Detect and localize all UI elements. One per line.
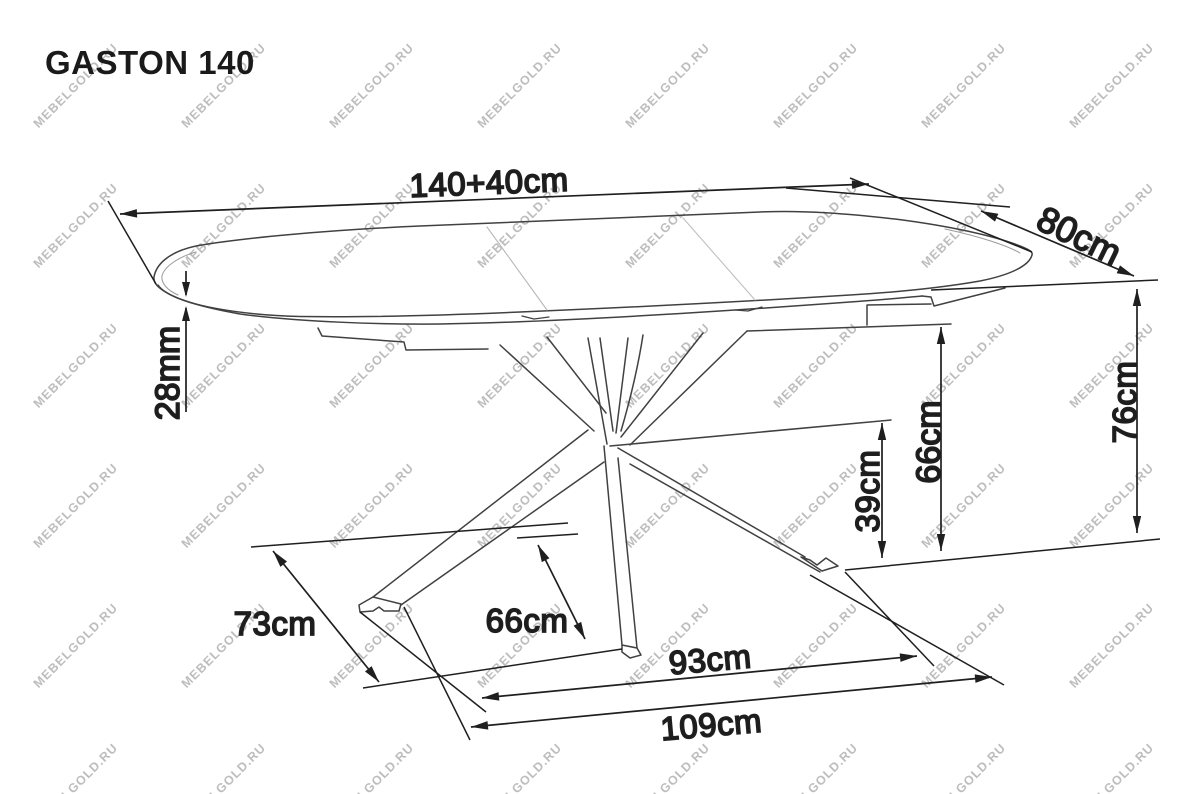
svg-text:76cm: 76cm bbox=[1106, 361, 1143, 444]
svg-text:MEBELGOLD.RU: MEBELGOLD.RU bbox=[623, 741, 713, 794]
svg-text:MEBELGOLD.RU: MEBELGOLD.RU bbox=[1067, 601, 1157, 691]
svg-text:MEBELGOLD.RU: MEBELGOLD.RU bbox=[31, 461, 121, 551]
svg-text:MEBELGOLD.RU: MEBELGOLD.RU bbox=[327, 321, 417, 411]
svg-text:MEBELGOLD.RU: MEBELGOLD.RU bbox=[623, 181, 713, 271]
svg-text:MEBELGOLD.RU: MEBELGOLD.RU bbox=[179, 321, 269, 411]
svg-text:28mm: 28mm bbox=[149, 326, 187, 420]
svg-text:MEBELGOLD.RU: MEBELGOLD.RU bbox=[327, 181, 417, 271]
svg-text:GASTON 140: GASTON 140 bbox=[45, 44, 255, 81]
svg-text:MEBELGOLD.RU: MEBELGOLD.RU bbox=[771, 741, 861, 794]
svg-text:MEBELGOLD.RU: MEBELGOLD.RU bbox=[919, 41, 1009, 131]
svg-text:MEBELGOLD.RU: MEBELGOLD.RU bbox=[1067, 41, 1157, 131]
svg-text:MEBELGOLD.RU: MEBELGOLD.RU bbox=[475, 41, 565, 131]
svg-text:MEBELGOLD.RU: MEBELGOLD.RU bbox=[179, 461, 269, 551]
svg-text:MEBELGOLD.RU: MEBELGOLD.RU bbox=[623, 321, 713, 411]
svg-text:MEBELGOLD.RU: MEBELGOLD.RU bbox=[623, 41, 713, 131]
svg-text:66cm: 66cm bbox=[910, 400, 948, 483]
svg-text:MEBELGOLD.RU: MEBELGOLD.RU bbox=[327, 741, 417, 794]
svg-text:MEBELGOLD.RU: MEBELGOLD.RU bbox=[475, 741, 565, 794]
svg-text:MEBELGOLD.RU: MEBELGOLD.RU bbox=[327, 41, 417, 131]
svg-text:MEBELGOLD.RU: MEBELGOLD.RU bbox=[771, 461, 861, 551]
svg-text:MEBELGOLD.RU: MEBELGOLD.RU bbox=[31, 601, 121, 691]
svg-text:MEBELGOLD.RU: MEBELGOLD.RU bbox=[31, 181, 121, 271]
svg-text:MEBELGOLD.RU: MEBELGOLD.RU bbox=[771, 41, 861, 131]
svg-text:MEBELGOLD.RU: MEBELGOLD.RU bbox=[179, 181, 269, 271]
svg-text:MEBELGOLD.RU: MEBELGOLD.RU bbox=[919, 321, 1009, 411]
svg-text:39cm: 39cm bbox=[849, 450, 886, 533]
svg-text:66cm: 66cm bbox=[486, 602, 569, 639]
svg-text:MEBELGOLD.RU: MEBELGOLD.RU bbox=[919, 181, 1009, 271]
svg-text:MEBELGOLD.RU: MEBELGOLD.RU bbox=[1067, 741, 1157, 794]
svg-text:MEBELGOLD.RU: MEBELGOLD.RU bbox=[1067, 461, 1157, 551]
svg-text:93cm: 93cm bbox=[667, 637, 753, 681]
svg-text:MEBELGOLD.RU: MEBELGOLD.RU bbox=[31, 321, 121, 411]
svg-text:73cm: 73cm bbox=[234, 605, 317, 642]
svg-text:MEBELGOLD.RU: MEBELGOLD.RU bbox=[31, 741, 121, 794]
svg-text:MEBELGOLD.RU: MEBELGOLD.RU bbox=[623, 461, 713, 551]
svg-text:MEBELGOLD.RU: MEBELGOLD.RU bbox=[771, 601, 861, 691]
svg-text:MEBELGOLD.RU: MEBELGOLD.RU bbox=[919, 601, 1009, 691]
svg-text:MEBELGOLD.RU: MEBELGOLD.RU bbox=[475, 321, 565, 411]
svg-text:MEBELGOLD.RU: MEBELGOLD.RU bbox=[179, 741, 269, 794]
svg-text:MEBELGOLD.RU: MEBELGOLD.RU bbox=[919, 741, 1009, 794]
svg-text:140+40cm: 140+40cm bbox=[409, 161, 569, 204]
svg-text:MEBELGOLD.RU: MEBELGOLD.RU bbox=[771, 181, 861, 271]
svg-text:109cm: 109cm bbox=[659, 702, 763, 748]
svg-text:MEBELGOLD.RU: MEBELGOLD.RU bbox=[771, 321, 861, 411]
